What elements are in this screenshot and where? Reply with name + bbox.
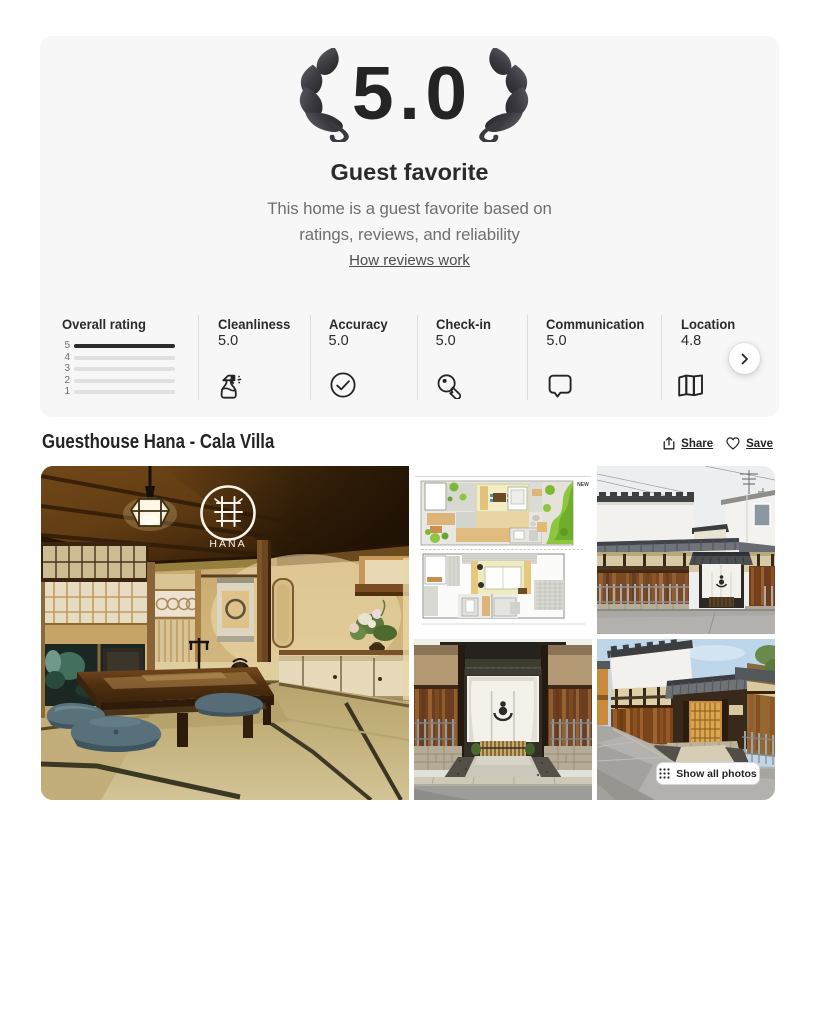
svg-text:NEW: NEW	[577, 482, 589, 488]
svg-text:HANA: HANA	[209, 538, 246, 550]
